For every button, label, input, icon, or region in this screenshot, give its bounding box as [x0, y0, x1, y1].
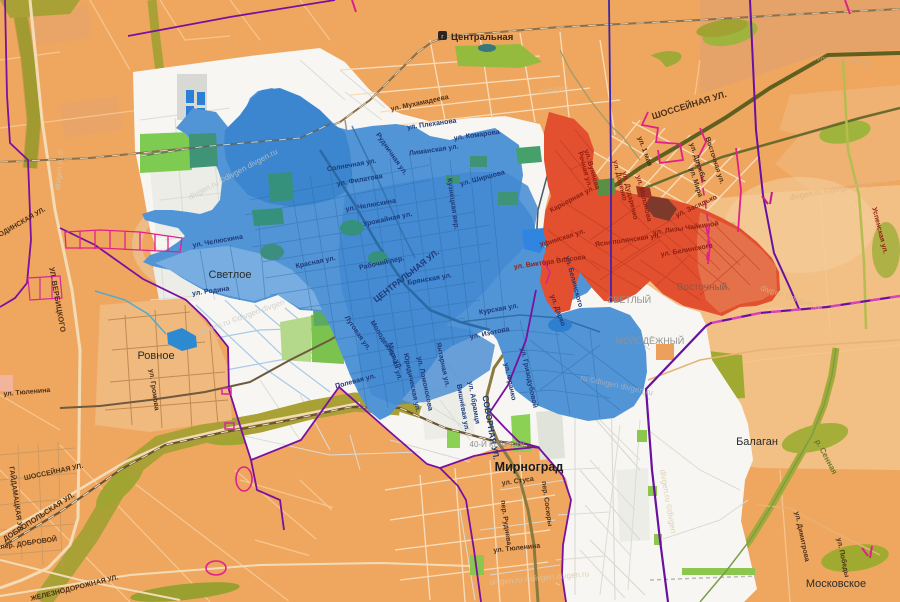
svg-text:Мирноград: Мирноград — [495, 460, 564, 474]
svg-text:Ровное: Ровное — [137, 350, 174, 362]
svg-text:Балаган: Балаган — [736, 436, 778, 448]
svg-text:Московское: Московское — [806, 578, 866, 590]
svg-text:Центральная: Центральная — [451, 32, 513, 43]
svg-text:Восточный: Восточный — [677, 282, 728, 293]
svg-text:40-Й КВАРТАЛ: 40-Й КВАРТАЛ — [470, 440, 525, 449]
svg-text:Светлое: Светлое — [209, 269, 252, 281]
svg-text:МОЛОДЁЖНЫЙ: МОЛОДЁЖНЫЙ — [616, 335, 684, 346]
svg-text:СВЕТЛЫЙ: СВЕТЛЫЙ — [607, 294, 651, 305]
